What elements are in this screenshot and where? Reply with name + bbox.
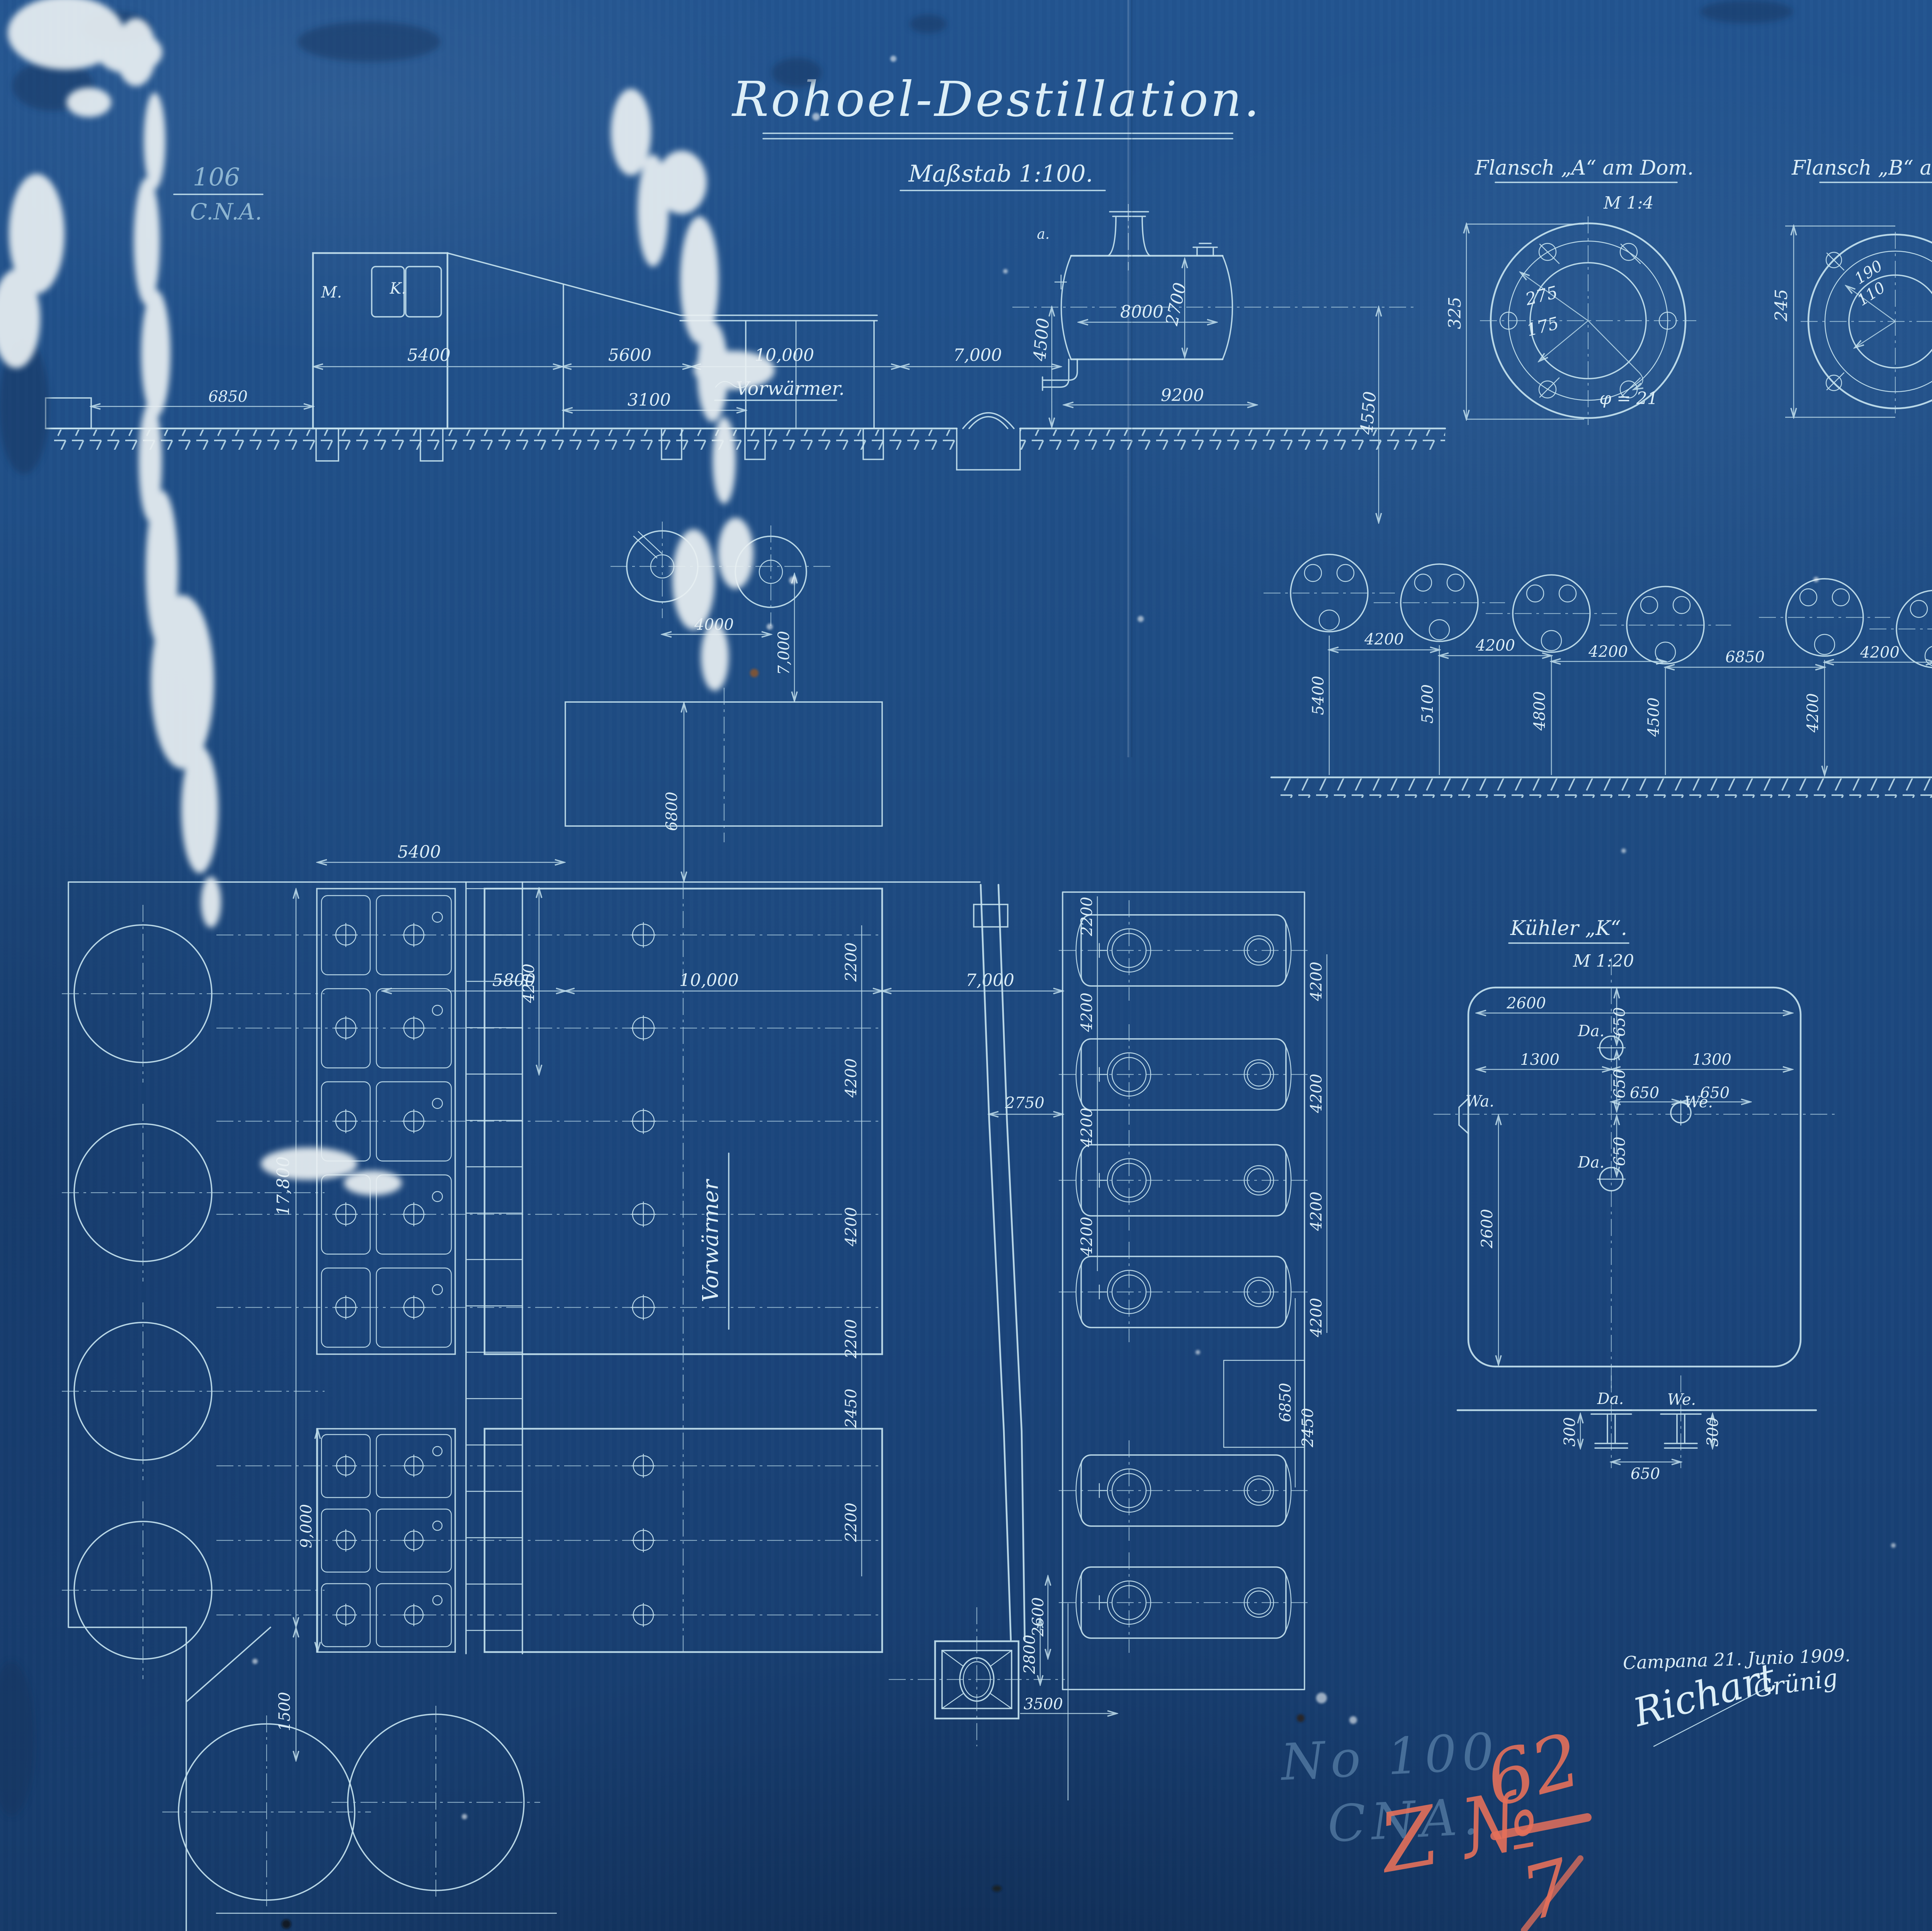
vorwaermer-halls: Vorwärmer	[485, 882, 882, 1654]
battery-width-dim: 5400	[398, 842, 441, 862]
dim-boiler-total: 9200	[1161, 386, 1204, 405]
row-dim: 4200	[1078, 1217, 1096, 1256]
spacing-dim: 4200	[1860, 644, 1900, 661]
flange-b-detail: Flansch „B“ am Kühler. 190 110 245	[1772, 156, 1932, 417]
row-dim: 4200	[1078, 993, 1096, 1032]
white-specks	[252, 56, 1896, 1819]
blueprint-drawing: Rohoel-Destillation. Maßstab 1:100. 106 …	[0, 0, 1932, 1931]
flange-b-title: Flansch „B“ am Kühler.	[1791, 156, 1932, 180]
sheet-scale: Maßstab 1:100.	[908, 160, 1093, 187]
cooler-1300-r: 1300	[1692, 1051, 1731, 1069]
row-dim: 2200	[842, 1503, 860, 1542]
dim-boiler-length: 8000	[1120, 302, 1163, 322]
plan-top-dim: 7,000	[966, 971, 1014, 990]
flange-a-detail: Flansch „A“ am Dom. M 1:4 275 175 φ = 21…	[1445, 156, 1696, 425]
boiler-end-views: 4200 4200 4200 6850 4200 5400 5100 4800 …	[1264, 554, 1932, 798]
dim-9000: 9,000	[298, 1504, 315, 1549]
section-300-r: 300	[1704, 1417, 1722, 1447]
gap-dim-a: 6850	[1277, 1383, 1294, 1422]
still-vessel-column: 2200 4200 4200 4200 4200 4200 4200 4200 …	[989, 892, 1327, 1690]
plan-left-dims: 17,800 9,000 1500	[274, 889, 318, 1760]
cooler-650: 650	[1630, 1084, 1659, 1102]
chimney-dim-h: 3500	[1024, 1695, 1063, 1713]
height-dim: 5100	[1419, 684, 1437, 724]
plan-top-dims: 5800 10,000 7,000 4200 5400	[318, 842, 1063, 1074]
flange-b-height: 245	[1772, 289, 1791, 322]
white-stains	[0, 0, 775, 1195]
spacing-dim: 4200	[1475, 637, 1515, 654]
label-wa: Wa.	[1466, 1093, 1494, 1110]
flange-a-bolt-dia: φ = 21	[1599, 389, 1658, 408]
row-dim: 2200	[842, 942, 860, 982]
stamp-org: C.N.A.	[190, 199, 262, 225]
plan-row-dims-left: 2200 4200 4200 2200 2450 2200	[842, 925, 862, 1576]
dim-2600: 2600	[1029, 1597, 1047, 1637]
blueprint-sheet: Rohoel-Destillation. Maßstab 1:100. 106 …	[0, 0, 1932, 1931]
section-label-we: We.	[1667, 1391, 1696, 1409]
height-dim: 4500	[1645, 697, 1663, 737]
row-dim: 2450	[842, 1389, 860, 1428]
dim-boiler-hl: 4500	[1030, 317, 1053, 362]
plan-view: Vorwärmer 5800 10,000 7,000 4200 5400 17…	[62, 842, 1327, 1931]
pipe-rack-ladder	[466, 882, 522, 1654]
flange-a-scale: M 1:4	[1603, 193, 1654, 213]
section-650: 650	[1631, 1465, 1660, 1483]
preheater-box: 6800	[565, 688, 882, 881]
boiler-drawing: a. 8000 2700 9200 4500 4550	[1012, 204, 1414, 522]
label-m: M.	[321, 284, 342, 301]
spacing-dim: 4200	[1364, 631, 1404, 648]
cooler-1300-l: 1300	[1520, 1051, 1560, 1069]
label-da-bottom: Da.	[1578, 1154, 1605, 1171]
dim-wall: 3100	[628, 390, 671, 410]
row-dim: 4200	[1308, 1298, 1325, 1338]
label-k: K.	[389, 280, 406, 297]
row-dim: 4200	[842, 1058, 860, 1098]
dim-bay: 5600	[608, 345, 651, 365]
flange-a-height: 325	[1445, 297, 1465, 329]
spacing-dim: 6850	[1725, 648, 1765, 666]
section-label-da: Da.	[1597, 1390, 1624, 1408]
label-a: a.	[1037, 226, 1050, 242]
wheel-height: 7,000	[775, 631, 793, 675]
dim-building: 5400	[407, 345, 451, 365]
corner-stamp: 106 C.N.A.	[174, 163, 263, 225]
cooler-title: Kühler „K“.	[1510, 917, 1627, 940]
cooler-650: 650	[1611, 1137, 1629, 1166]
nozzle-beams	[1591, 1410, 1701, 1448]
dim-right: 7,000	[953, 345, 1002, 365]
row-dim: 4200	[842, 1207, 860, 1247]
cell-battery	[216, 882, 881, 1654]
signature-block: Campana 21. Junio 1909. Richart Grünig	[1622, 1645, 1851, 1746]
box-dim: 6800	[663, 792, 681, 831]
label-da-top: Da.	[1578, 1022, 1605, 1040]
height-dim: 4200	[1804, 693, 1822, 733]
stamp-number: 106	[193, 163, 240, 192]
cooler-650: 650	[1611, 1007, 1629, 1037]
dim-1500: 1500	[276, 1692, 294, 1731]
left-structure: 6850	[46, 388, 313, 428]
tank-circles	[62, 905, 540, 1909]
cooler-section: Da. We. 300 300 650	[1458, 1375, 1816, 1483]
row-dim: 4200	[1308, 962, 1325, 1001]
still-vessels	[1076, 915, 1291, 1638]
plan-row-dims-right: 4200 4200 4200 4200	[1308, 954, 1327, 1338]
chimney-dim-v: 2800	[1021, 1635, 1039, 1674]
section-300-l: 300	[1561, 1417, 1579, 1447]
dim-boiler-hr: 4550	[1357, 391, 1380, 436]
height-dim: 4800	[1531, 691, 1549, 731]
cooler-scale: M 1:20	[1573, 951, 1634, 971]
plan-top-dim: 10,000	[679, 971, 739, 990]
plan-inner-dim: 4200	[520, 964, 538, 1003]
row-dim: 2200	[842, 1319, 860, 1359]
downcomer-pipe	[974, 885, 1025, 1640]
row-dim: 4200	[1308, 1192, 1325, 1231]
flange-a-title: Flansch „A“ am Dom.	[1475, 156, 1694, 180]
label-we: We.	[1684, 1093, 1713, 1111]
cooler-side-dim: 2600	[1478, 1209, 1496, 1249]
dim-boiler-diameter: 2700	[1162, 281, 1190, 328]
row-dim: 2200	[1078, 897, 1096, 937]
spacing-dim: 4200	[1588, 643, 1628, 661]
elevation-dim-row: 5400 5600 10,000 7,000	[314, 345, 1061, 367]
dark-stains	[0, 0, 1793, 1816]
gap-dim-b: 2450	[1299, 1408, 1317, 1448]
flange-a-bolt-circle: 275	[1523, 282, 1560, 309]
height-dim: 5400	[1310, 676, 1327, 715]
end-view-ground	[1271, 777, 1932, 798]
cooler-width: 2600	[1506, 994, 1546, 1012]
red-denominator: 7	[1513, 1843, 1580, 1931]
row-dim: 4200	[1078, 1108, 1096, 1147]
title-block: Rohoel-Destillation. Maßstab 1:100.	[731, 71, 1262, 190]
gap-dim-c: 2750	[1005, 1094, 1044, 1112]
cooler-detail: Kühler „K“. M 1:20 2600 650 1300 1300 65…	[1434, 917, 1835, 1483]
dim-left-gap: 6850	[208, 388, 248, 406]
furnace-building: M. K. 3100 Vorwärmer.	[313, 253, 877, 428]
cooler-650: 650	[1611, 1069, 1629, 1098]
row-dim: 4200	[1308, 1074, 1325, 1113]
vorwaermer-label: Vorwärmer	[698, 1178, 723, 1302]
hall-fittings	[631, 923, 656, 1627]
end-view-dims: 4200 4200 4200 6850 4200 5400 5100 4800 …	[1310, 631, 1932, 775]
